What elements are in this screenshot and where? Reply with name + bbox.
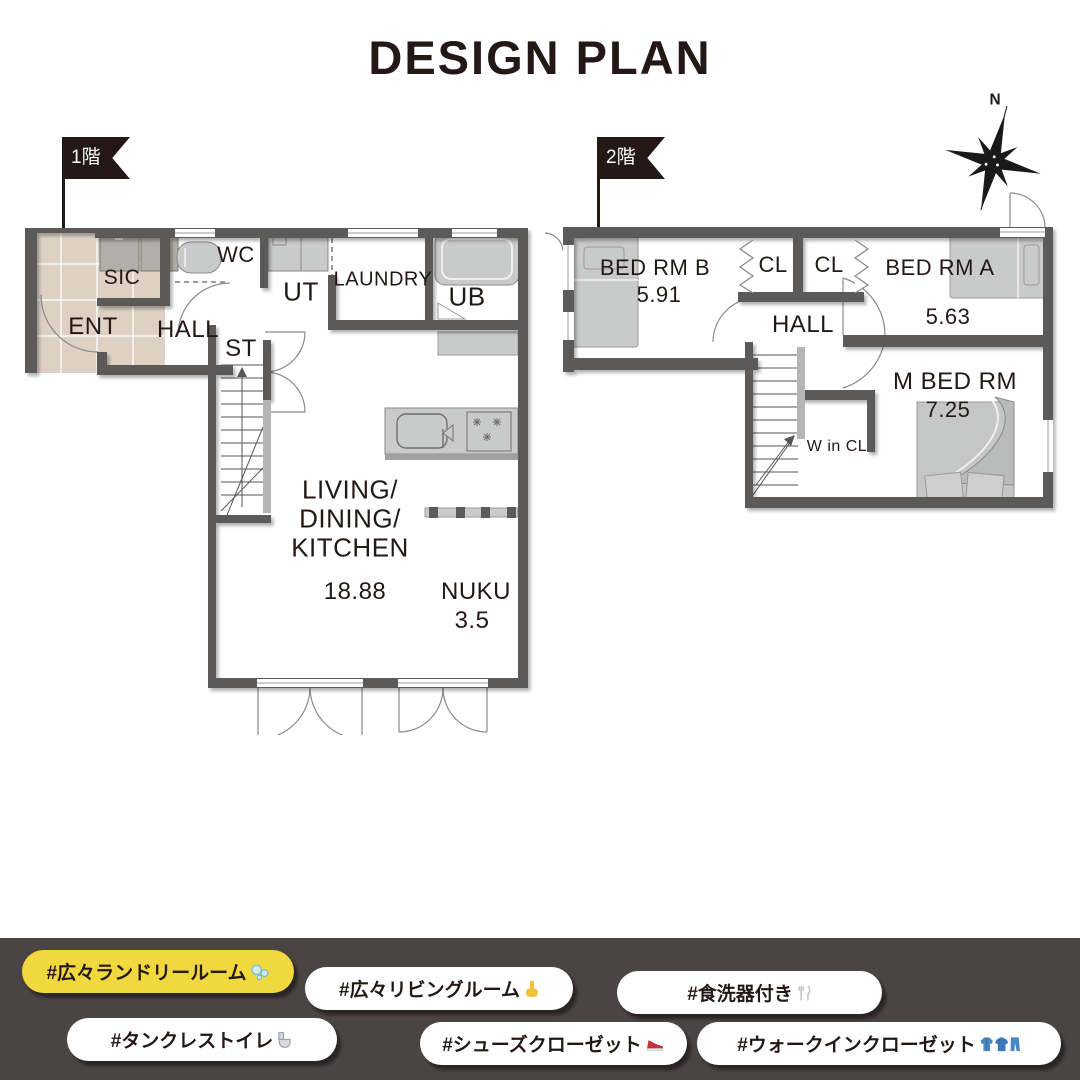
hashtag-pill: #ウォークインクローゼット <box>697 1022 1061 1065</box>
sneaker-emoji <box>645 1036 665 1052</box>
clothes-emoji <box>979 1035 1021 1053</box>
floor2-flag-label: 2階 <box>597 137 665 179</box>
stair-rail-2f <box>797 347 805 439</box>
hashtag-label: #広々ランドリールーム <box>47 958 247 985</box>
room-label-sic: SIC <box>104 266 141 290</box>
hashtag-pill: #食洗器付き <box>617 971 882 1014</box>
hashtag-label: #ウォークインクローゼット <box>737 1030 976 1057</box>
floor1-flag-label: 1階 <box>62 137 130 179</box>
hashtag-band: #広々ランドリールーム#広々リビングルーム#食洗器付き#タンクレストイレ#シュー… <box>0 938 1080 1080</box>
room-label-hall: HALL <box>157 316 219 344</box>
room-label-hall-2f: HALL <box>772 311 834 339</box>
second-floor-plan: BED RM B 5.91 CL CL BED RM A 5.63 HALL W… <box>540 185 1070 530</box>
room-label-bed-b: BED RM B <box>600 255 710 281</box>
room-label-ut: UT <box>283 277 319 308</box>
room-area-nuku: 3.5 <box>455 607 490 635</box>
room-label-nuku: NUKU <box>441 578 511 606</box>
hashtag-label: #広々リビングルーム <box>339 975 520 1002</box>
room-label-ub: UB <box>448 282 485 313</box>
hashtag-pill: #シューズクローゼット <box>420 1022 687 1065</box>
nuku-rail <box>425 507 518 518</box>
room-label-ldk-line3: KITCHEN <box>291 533 409 564</box>
second-floor-drawing <box>540 185 1070 530</box>
room-label-w-in-cl: W in CL <box>807 438 867 456</box>
stair-rail <box>263 400 271 513</box>
hashtag-label: #シューズクローゼット <box>442 1030 642 1057</box>
toilet-emoji <box>276 1031 293 1049</box>
room-label-cl2: CL <box>814 252 843 278</box>
stove <box>467 412 511 451</box>
room-label-ldk-line1: LIVING/ <box>302 475 398 506</box>
fork-knife-plate-emoji <box>796 984 812 1002</box>
first-floor-plan: SIC WC ENT HALL UT LAUNDRY UB ST LIVING/… <box>15 215 535 735</box>
page-title: DESIGN PLAN <box>0 30 1080 85</box>
bathtub-fixture <box>435 233 519 285</box>
hashtag-label: #食洗器付き <box>687 979 793 1006</box>
room-label-bed-a: BED RM A <box>885 255 994 281</box>
bubbles-emoji <box>250 963 270 981</box>
compass-north-label: N <box>989 92 1000 108</box>
washer-fixture <box>268 233 328 271</box>
room-area-bed-b: 5.91 <box>637 282 682 308</box>
hashtag-pill: #タンクレストイレ <box>67 1018 337 1061</box>
room-label-wc: WC <box>217 242 255 268</box>
room-area-m-bed: 7.25 <box>926 397 971 423</box>
kitchen-sink <box>397 414 447 448</box>
hashtag-pill: #広々ランドリールーム <box>22 950 294 993</box>
room-label-laundry: LAUNDRY <box>334 269 433 292</box>
hashtag-pill: #広々リビングルーム <box>305 967 573 1010</box>
hashtag-label: #タンクレストイレ <box>111 1026 274 1053</box>
sic-shelf <box>141 233 178 271</box>
room-area-ldk: 18.88 <box>324 578 387 606</box>
room-label-ent: ENT <box>68 313 118 341</box>
bath-annex <box>438 332 518 355</box>
room-label-cl1: CL <box>758 252 787 278</box>
room-area-bed-a: 5.63 <box>926 304 971 330</box>
toilet-fixture <box>177 242 221 273</box>
room-label-ldk-line2: DINING/ <box>299 504 401 535</box>
room-label-m-bed: M BED RM <box>893 368 1017 396</box>
pointing-up-emoji <box>523 980 539 998</box>
room-label-st: ST <box>225 335 257 363</box>
floor-plan-poster: DESIGN PLAN 1階 2階 N <box>0 0 1080 1080</box>
bed-b-fixture <box>570 237 638 347</box>
kitchen-counter <box>385 408 518 460</box>
